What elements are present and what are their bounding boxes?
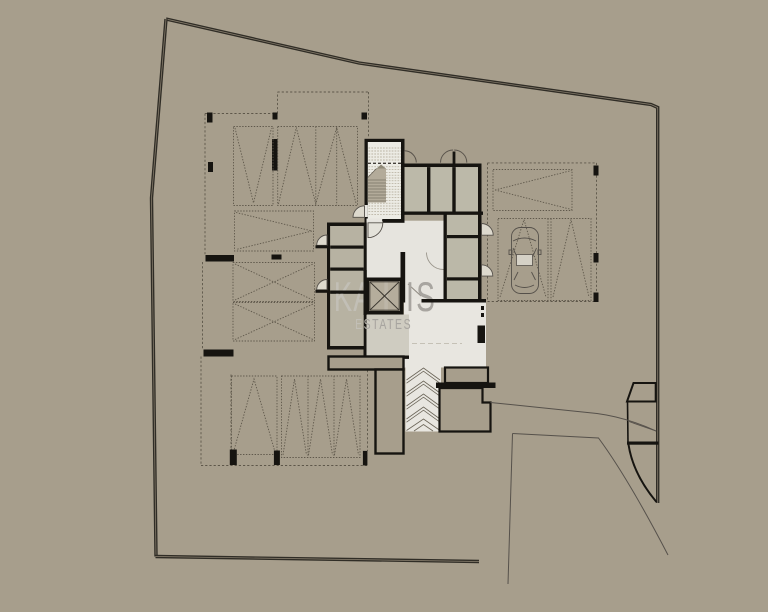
- svg-text:I: I: [406, 273, 414, 320]
- svg-text:S: S: [416, 273, 434, 320]
- svg-text:K: K: [334, 273, 353, 320]
